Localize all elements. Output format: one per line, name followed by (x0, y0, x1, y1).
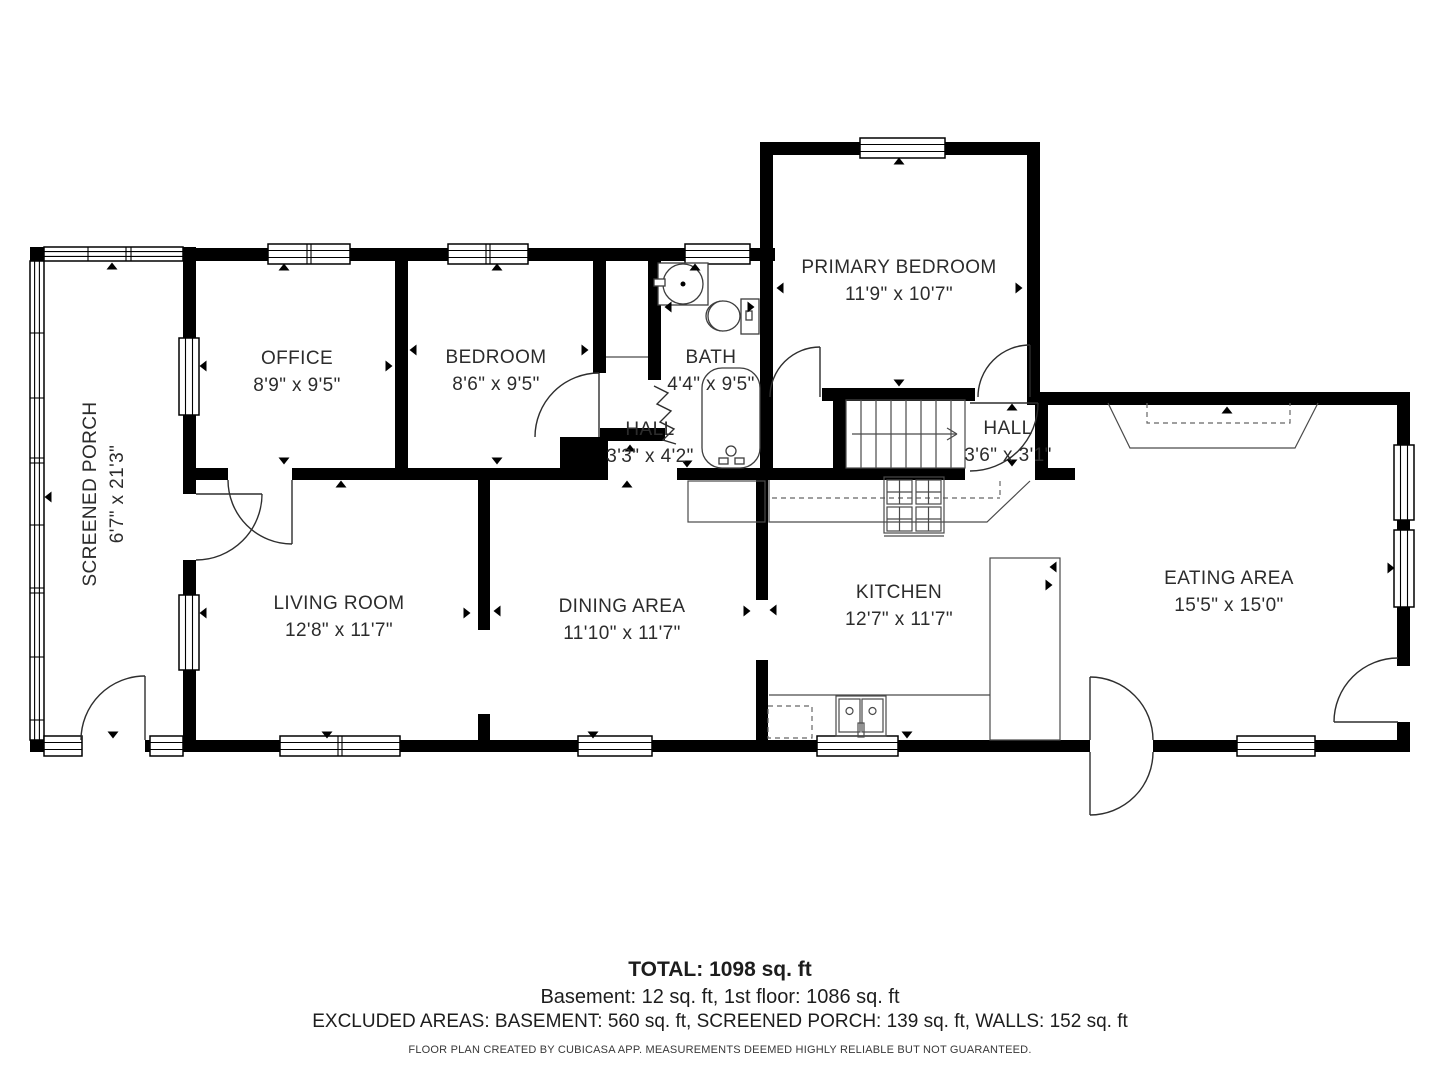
room-label-kitchen: KITCHEN 12'7" x 11'7" (845, 579, 953, 633)
room-label-dining-area: DINING AREA 11'10" x 11'7" (559, 593, 686, 647)
stairs (846, 400, 965, 468)
room-dims: 6'7" x 21'3" (104, 401, 131, 586)
room-name: LIVING ROOM (273, 590, 404, 617)
dining-cabinet (688, 481, 765, 522)
room-dims: 11'10" x 11'7" (559, 620, 686, 647)
room-dims: 3'6" x 3'1" (964, 442, 1051, 469)
kitchen-window (817, 736, 898, 756)
porch-bottom-window-left (44, 736, 82, 756)
room-name: BEDROOM (446, 344, 547, 371)
living-room-window (280, 736, 400, 756)
room-dims: 8'6" x 9'5" (446, 371, 547, 398)
room-label-bath: BATH 4'4" x 9'5" (667, 344, 754, 398)
eating-area-window (1237, 736, 1315, 756)
room-name: KITCHEN (845, 579, 953, 606)
room-name: HALL (606, 416, 693, 443)
bath-sink (654, 263, 708, 305)
primary-bedroom-door-left (770, 347, 820, 397)
excluded-areas: EXCLUDED AREAS: BASEMENT: 560 sq. ft, SC… (0, 1011, 1440, 1033)
porch-living-door (196, 494, 262, 560)
room-label-hall-1: HALL 3'3" x 4'2" (606, 416, 693, 470)
area-breakdown: Basement: 12 sq. ft, 1st floor: 1086 sq.… (0, 986, 1440, 1009)
eating-side-door (1334, 658, 1398, 722)
porch-office-window (179, 338, 199, 415)
stairs-direction-arrow (852, 428, 957, 440)
floor-plan: SCREENED PORCH 6'7" x 21'3" OFFICE 8'9" … (0, 0, 1440, 1080)
room-label-bedroom: BEDROOM 8'6" x 9'5" (446, 344, 547, 398)
room-label-hall-2: HALL 3'6" x 3'1" (964, 415, 1051, 469)
room-dims: 15'5" x 15'0" (1164, 592, 1294, 619)
toilet (706, 299, 759, 334)
room-name: DINING AREA (559, 593, 686, 620)
room-name: BATH (667, 344, 754, 371)
stove (884, 477, 944, 536)
room-name: OFFICE (253, 345, 340, 372)
room-label-eating-area: EATING AREA 15'5" x 15'0" (1164, 565, 1294, 619)
bath-window (685, 244, 750, 264)
office-window (268, 244, 350, 264)
dining-window (578, 736, 652, 756)
room-name: PRIMARY BEDROOM (801, 254, 996, 281)
room-dims: 12'7" x 11'7" (845, 606, 953, 633)
porch-bottom-window-right (150, 736, 183, 756)
room-dims: 12'8" x 11'7" (273, 617, 404, 644)
room-name: EATING AREA (1164, 565, 1294, 592)
room-dims: 8'9" x 9'5" (253, 372, 340, 399)
eating-right-window-lower (1394, 530, 1414, 607)
room-label-living-room: LIVING ROOM 12'8" x 11'7" (273, 590, 404, 644)
room-name: SCREENED PORCH (77, 401, 104, 586)
dishwasher (768, 706, 812, 738)
eating-bay-counter (1108, 403, 1318, 448)
room-label-screened-porch: SCREENED PORCH 6'7" x 21'3" (77, 401, 131, 586)
kitchen-sink (836, 696, 886, 737)
primary-bedroom-window (860, 138, 945, 158)
room-label-office: OFFICE 8'9" x 9'5" (253, 345, 340, 399)
room-dims: 11'9" x 10'7" (801, 281, 996, 308)
total-area: TOTAL: 1098 sq. ft (0, 958, 1440, 982)
porch-exterior-door (81, 676, 145, 740)
room-dims: 3'3" x 4'2" (606, 443, 693, 470)
room-name: HALL (964, 415, 1051, 442)
room-label-primary-bedroom: PRIMARY BEDROOM 11'9" x 10'7" (801, 254, 996, 308)
disclaimer: FLOOR PLAN CREATED BY CUBICASA APP. MEAS… (0, 1044, 1440, 1056)
double-swing-door (1090, 677, 1153, 815)
bedroom-window (448, 244, 528, 264)
room-dims: 4'4" x 9'5" (667, 371, 754, 398)
floor-plan-drawing (0, 0, 1440, 1080)
primary-bedroom-door-right (978, 345, 1030, 397)
eating-right-window-upper (1394, 445, 1414, 520)
porch-living-window (179, 595, 199, 670)
